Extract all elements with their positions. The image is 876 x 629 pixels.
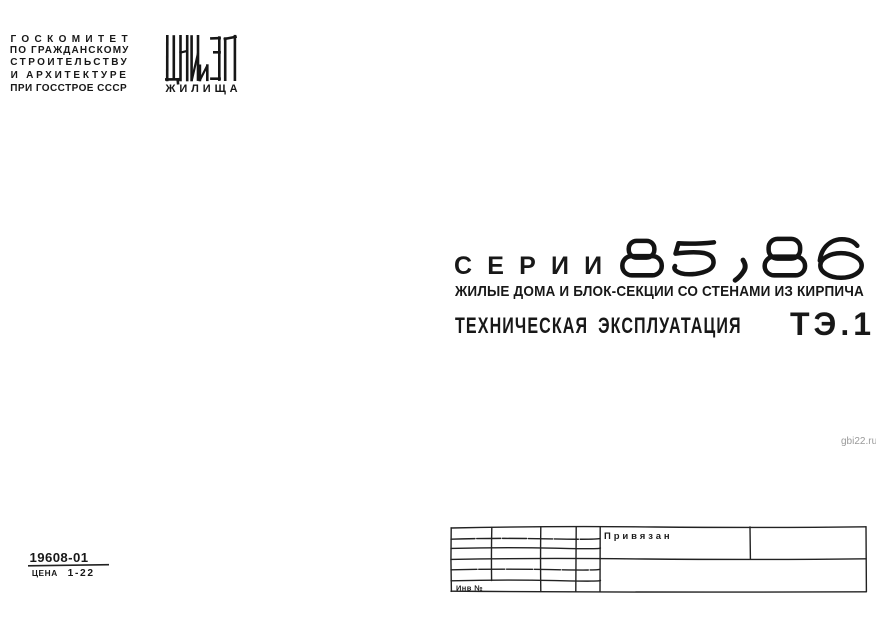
svg-text:ЖИЛИЩА: ЖИЛИЩА (165, 83, 242, 95)
svg-text:Инв №: Инв № (456, 584, 483, 593)
svg-text:Привязан: Привязан (604, 531, 673, 542)
